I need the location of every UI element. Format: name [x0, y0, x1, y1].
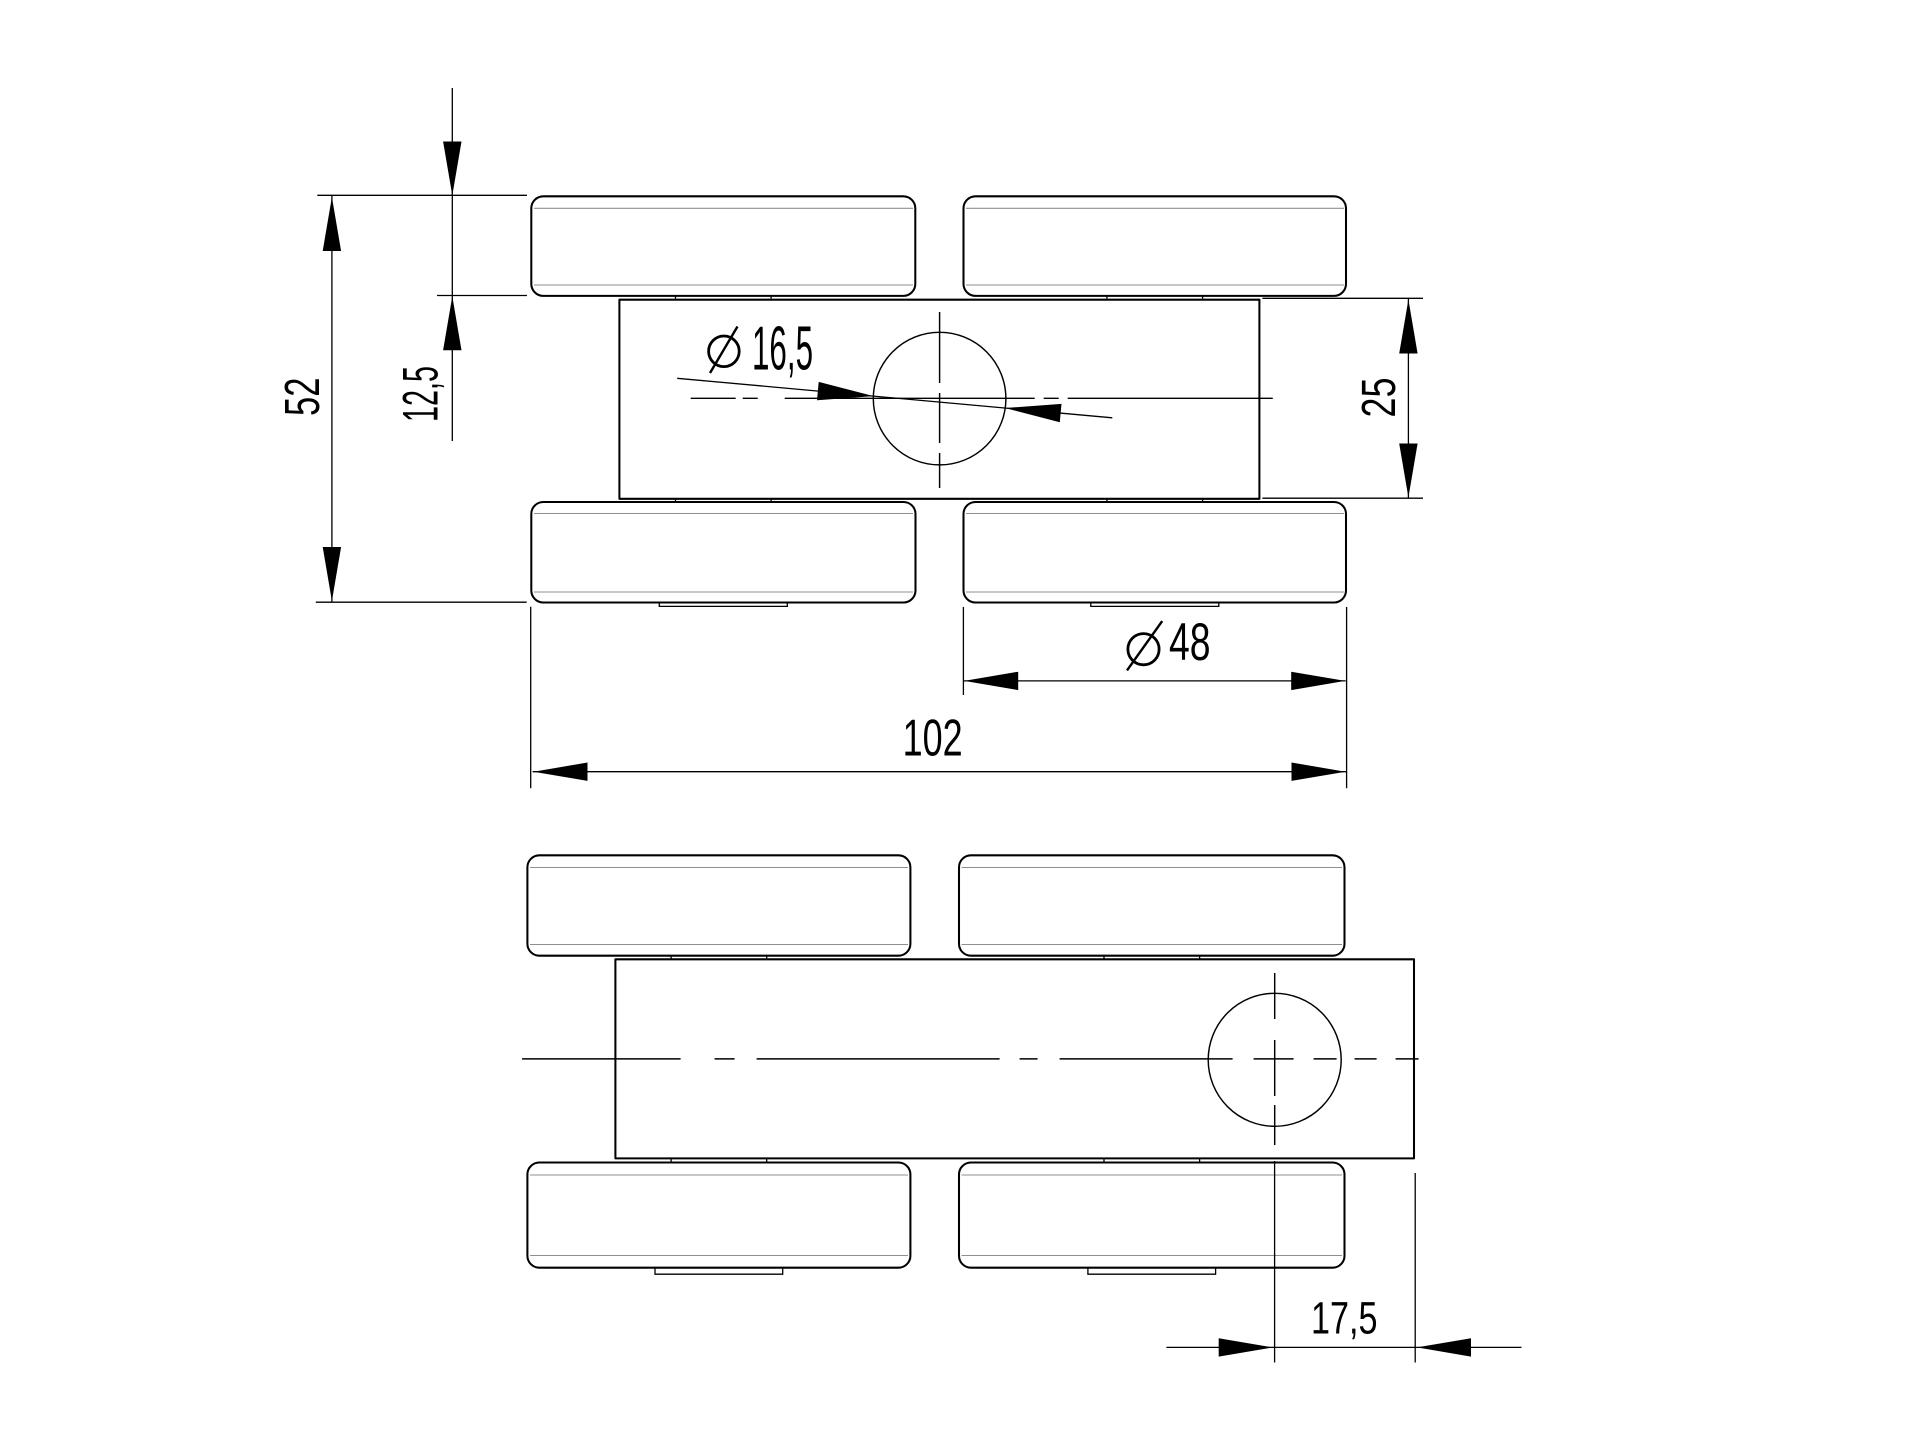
svg-text:48: 48 [1169, 613, 1211, 672]
svg-text:25: 25 [1352, 378, 1406, 418]
svg-text:16,5: 16,5 [752, 315, 813, 384]
svg-text:17,5: 17,5 [1311, 1292, 1378, 1343]
svg-text:12,5: 12,5 [393, 366, 449, 422]
svg-text:52: 52 [276, 378, 330, 417]
svg-text:102: 102 [903, 709, 963, 767]
